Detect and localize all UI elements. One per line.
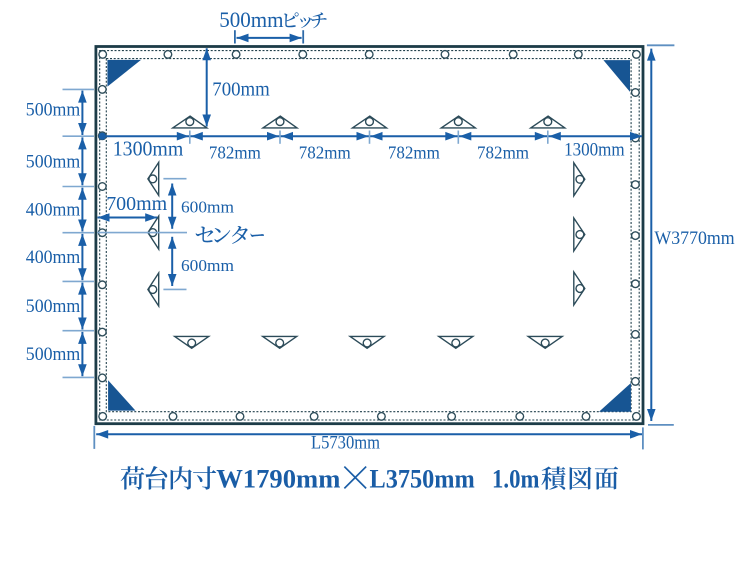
svg-text:782mm: 782mm bbox=[477, 143, 529, 163]
svg-text:W3770mm: W3770mm bbox=[654, 228, 734, 249]
svg-text:782mm: 782mm bbox=[299, 143, 351, 163]
svg-text:1300mm: 1300mm bbox=[113, 137, 184, 161]
svg-text:700mm: 700mm bbox=[212, 78, 270, 100]
svg-text:500mm: 500mm bbox=[26, 151, 81, 172]
svg-text:500mm: 500mm bbox=[219, 7, 283, 32]
svg-text:500mm: 500mm bbox=[26, 296, 81, 317]
svg-text:782mm: 782mm bbox=[388, 143, 440, 163]
svg-text:782mm: 782mm bbox=[209, 143, 261, 163]
svg-text:500mm: 500mm bbox=[26, 344, 81, 365]
svg-text:600mm: 600mm bbox=[181, 256, 234, 275]
svg-text:400mm: 400mm bbox=[26, 200, 81, 221]
svg-text:600mm: 600mm bbox=[181, 198, 234, 217]
svg-text:1.0m: 1.0m bbox=[492, 464, 539, 494]
svg-text:400mm: 400mm bbox=[26, 247, 81, 268]
svg-text:500mm: 500mm bbox=[26, 99, 81, 120]
svg-text:L5730mm: L5730mm bbox=[311, 433, 380, 454]
svg-text:W1790mm: W1790mm bbox=[216, 464, 340, 494]
svg-text:L3750mm: L3750mm bbox=[370, 464, 475, 494]
svg-text:700mm: 700mm bbox=[106, 193, 167, 215]
svg-text:1300mm: 1300mm bbox=[564, 140, 625, 161]
